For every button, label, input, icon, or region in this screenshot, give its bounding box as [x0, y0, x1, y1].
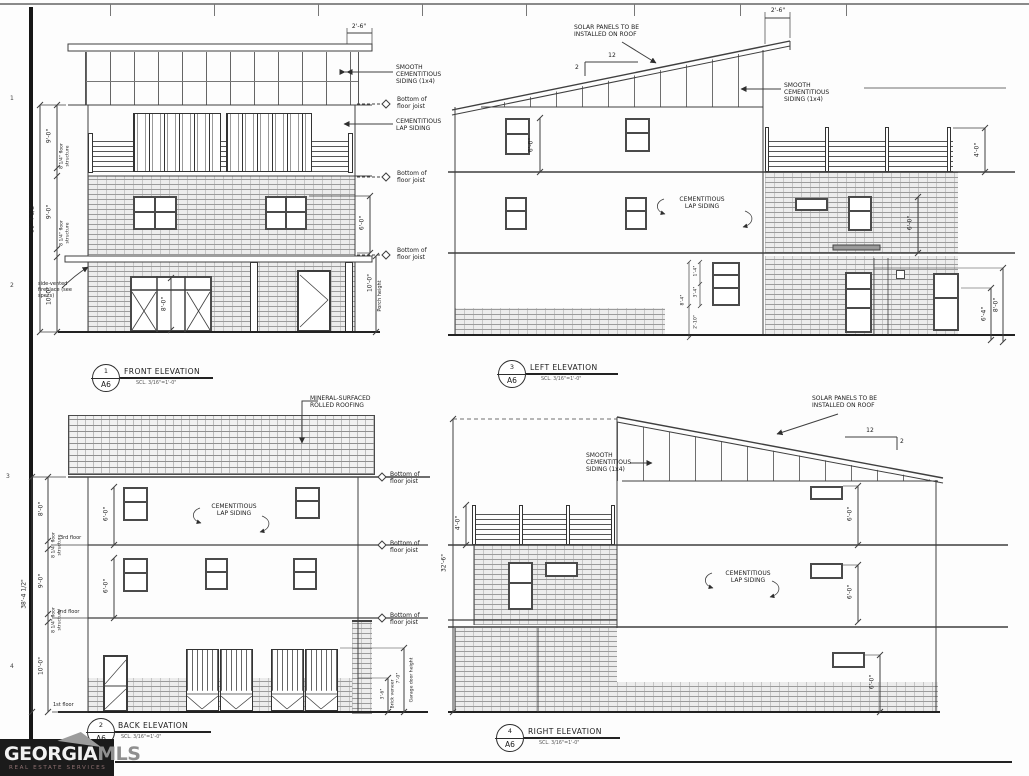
front-fireplace-label: side-vented fireplace (see specs) [38, 282, 78, 300]
left-scale: SCL. 3/16"=1'-0" [541, 377, 581, 382]
left-slope-rise: 2 [575, 64, 579, 71]
right-title: RIGHT ELEVATION [528, 727, 602, 736]
left-window-height-dim: 6'-0" [908, 216, 915, 230]
right-lap-siding-label: CEMENTITIOUS LAP SIDING [720, 570, 776, 584]
back-1st-floor-label: 1st floor [53, 703, 74, 709]
front-floor2-height-dim: 9'-0" [47, 205, 54, 219]
back-bottom-joist-label: Bottom of floor joist [390, 471, 428, 485]
left-small-dim: 2'-10" [693, 315, 698, 329]
back-floor-structure-label: 8 1/4" floor structure [52, 526, 63, 564]
left-small-dim: 8'-4" [680, 295, 685, 306]
back-veneer-dim: 3'-6" [380, 689, 385, 700]
right-slope-rise: 2 [900, 438, 904, 445]
back-window-height-dim: 6'-0" [104, 579, 111, 593]
front-title-underline [120, 377, 213, 379]
front-floor-structure-label: 8 1/4" floor structure [60, 137, 71, 175]
back-lap-siding-label: CEMENTITIOUS LAP SIDING [206, 503, 262, 517]
left-window-dim: 6'-4" [982, 307, 989, 321]
front-scale: SCL. 3/16"=1'-0" [136, 381, 176, 386]
left-railing-height-dim: 4'-0" [975, 143, 982, 157]
left-window-height-dim: 6'-0" [529, 138, 536, 152]
left-small-dim: 1'-4" [693, 266, 698, 277]
back-detail-number: 2 [88, 721, 114, 729]
front-detail-number: 1 [93, 367, 119, 375]
back-roofing-label: MINERAL-SURFACED ROLLED ROOFING [310, 395, 372, 409]
right-detail-number: 4 [497, 727, 523, 735]
back-floor2-height-dim: 9'-0" [39, 574, 46, 588]
annotation-layer: SMOOTH CEMENTITIOUS SIDING (1x4) Bottom … [0, 0, 1029, 776]
left-title: LEFT ELEVATION [530, 363, 598, 372]
back-title-underline [114, 731, 211, 733]
front-porch-height-text: Porch height [378, 280, 384, 311]
right-window-height-dim: 6'-0" [870, 675, 877, 689]
front-smooth-siding-label: SMOOTH CEMENTITIOUS SIDING (1x4) [396, 64, 462, 85]
georgiamls-logo: GEORGIAMLS REAL ESTATE SERVICES [0, 739, 114, 776]
back-bottom-joist-label: Bottom of floor joist [390, 540, 428, 554]
front-floor3-height-dim: 9'-0" [47, 129, 54, 143]
back-overall-height-dim: 38'-4 1/2" [22, 579, 29, 609]
logo-mls-text: MLS [97, 743, 140, 765]
left-lap-siding-label: CEMENTITIOUS LAP SIDING [674, 196, 730, 210]
left-small-dim: 3'-4" [693, 287, 698, 298]
right-solar-label: SOLAR PANELS TO BE INSTALLED ON ROOF [812, 395, 900, 409]
right-title-underline [524, 737, 620, 739]
back-garage-height-text: Garage door height [409, 658, 414, 703]
left-smooth-siding-label: SMOOTH CEMENTITIOUS SIDING (1x4) [784, 82, 848, 103]
back-3rd-floor-label: 3rd floor [60, 536, 81, 542]
right-title-bubble: 4 A6 [496, 724, 524, 752]
front-lap-siding-label: CEMENTITIOUS LAP SIDING [396, 118, 452, 132]
front-bottom-joist-label: Bottom of floor joist [397, 247, 435, 261]
left-title-bubble: 3 A6 [498, 360, 526, 388]
left-overhang-dim: 2'-6" [763, 7, 793, 14]
left-solar-label: SOLAR PANELS TO BE INSTALLED ON ROOF [574, 24, 658, 38]
right-window-height-dim: 6'-0" [848, 585, 855, 599]
right-smooth-siding-label: SMOOTH CEMENTITIOUS SIDING (1x4) [586, 452, 648, 473]
right-overall-height-dim: 32'-6" [442, 554, 449, 572]
logo-tagline: REAL ESTATE SERVICES [9, 765, 106, 771]
left-slope-run: 12 [600, 52, 624, 59]
back-scale: SCL. 3/16"=1'-0" [121, 735, 161, 740]
front-title-bubble: 1 A6 [92, 364, 120, 392]
front-floor-structure-label: 8 1/4" floor structure [60, 214, 71, 252]
front-title: FRONT ELEVATION [124, 367, 200, 376]
back-title: BACK ELEVATION [118, 721, 188, 730]
back-garage-height-dim: 7'-0" [396, 673, 401, 684]
front-bottom-joist-label: Bottom of floor joist [397, 170, 435, 184]
back-floor3-height-dim: 8'-0" [39, 502, 46, 516]
left-title-underline [526, 373, 618, 375]
front-porch-height-dim: 10'-0" [368, 274, 375, 292]
left-window-dim: 8'-0" [994, 298, 1001, 312]
right-scale: SCL. 3/16"=1'-0" [539, 741, 579, 746]
back-window-height-dim: 6'-0" [104, 507, 111, 521]
front-window-height-dim: 6'-0" [360, 216, 367, 230]
back-floor1-height-dim: 10'-0" [39, 657, 46, 675]
right-railing-height-dim: 4'-0" [456, 516, 463, 530]
back-floor-structure-label: 8 1/4" floor structure [52, 601, 63, 639]
right-slope-run: 12 [858, 427, 882, 434]
front-overall-height-dim: 38'-4 1/2" [30, 203, 37, 233]
right-sheet-ref: A6 [497, 740, 523, 749]
back-veneer-text: Brick veneer [390, 680, 395, 709]
left-sheet-ref: A6 [499, 376, 525, 385]
front-sheet-ref: A6 [93, 380, 119, 389]
right-window-height-dim: 6'-0" [848, 507, 855, 521]
elevation-sheet: 1 2 3 4 [0, 0, 1029, 776]
logo-georgia-text: GEORGIA [4, 743, 97, 765]
front-window-dim: 8'-0" [162, 297, 169, 311]
back-bottom-joist-label: Bottom of floor joist [390, 612, 428, 626]
front-bottom-joist-label: Bottom of floor joist [397, 96, 435, 110]
left-detail-number: 3 [499, 363, 525, 371]
front-overhang-dim: 2'-6" [342, 23, 376, 30]
